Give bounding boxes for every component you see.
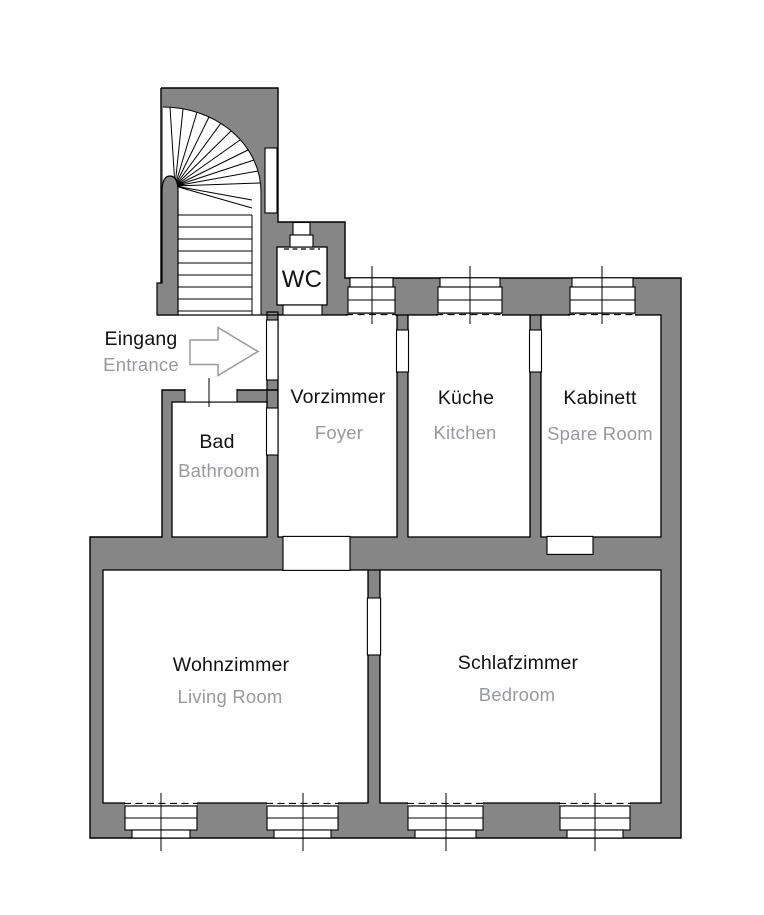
- label-entrance: Entrance: [103, 354, 179, 375]
- label-vorzimmer-de: Vorzimmer: [291, 386, 386, 408]
- label-wc: WC: [282, 266, 322, 293]
- door-wohnzimmer-schlafzimmer: [367, 598, 380, 655]
- windows-top: [346, 266, 636, 324]
- entrance-arrow-icon: [190, 328, 258, 376]
- door-vorzimmer-wohnzimmer: [283, 536, 350, 570]
- stair-newel: [157, 176, 178, 315]
- floorplan-svg: WC Vorzimmer Küche Kabinett Bad Wohnzimm…: [0, 0, 764, 915]
- window-top-vorzimmer: [346, 266, 396, 324]
- label-schlafzimmer-de: Schlafzimmer: [458, 652, 579, 674]
- wall-left-outer: [90, 537, 103, 838]
- window-top-kabinett: [568, 266, 636, 324]
- window-top-kueche: [436, 266, 503, 324]
- door-wc: [283, 305, 322, 315]
- label-vorzimmer-en: Foyer: [315, 422, 363, 443]
- room-floors: [103, 247, 661, 803]
- label-kabinett-de: Kabinett: [563, 387, 637, 409]
- door-kueche-kabinett: [530, 330, 542, 372]
- floorplan-page: WC Vorzimmer Küche Kabinett Bad Wohnzimm…: [0, 0, 764, 915]
- door-kabinett-niche: [547, 536, 593, 554]
- door-vorzimmer-kueche: [397, 330, 409, 372]
- label-wohnzimmer-en: Living Room: [177, 686, 282, 707]
- door-entrance-opening: [267, 320, 279, 380]
- label-bad-en: Bathroom: [178, 460, 260, 481]
- label-bad-de: Bad: [199, 431, 234, 453]
- door-bad: [267, 408, 279, 455]
- label-kabinett-en: Spare Room: [547, 423, 653, 444]
- label-wohnzimmer-de: Wohnzimmer: [173, 654, 290, 676]
- label-kueche-de: Küche: [438, 387, 494, 409]
- label-eingang: Eingang: [105, 328, 178, 350]
- label-kueche-en: Kitchen: [433, 422, 496, 443]
- label-schlafzimmer-en: Bedroom: [479, 684, 555, 705]
- window-stairwell: [265, 148, 277, 213]
